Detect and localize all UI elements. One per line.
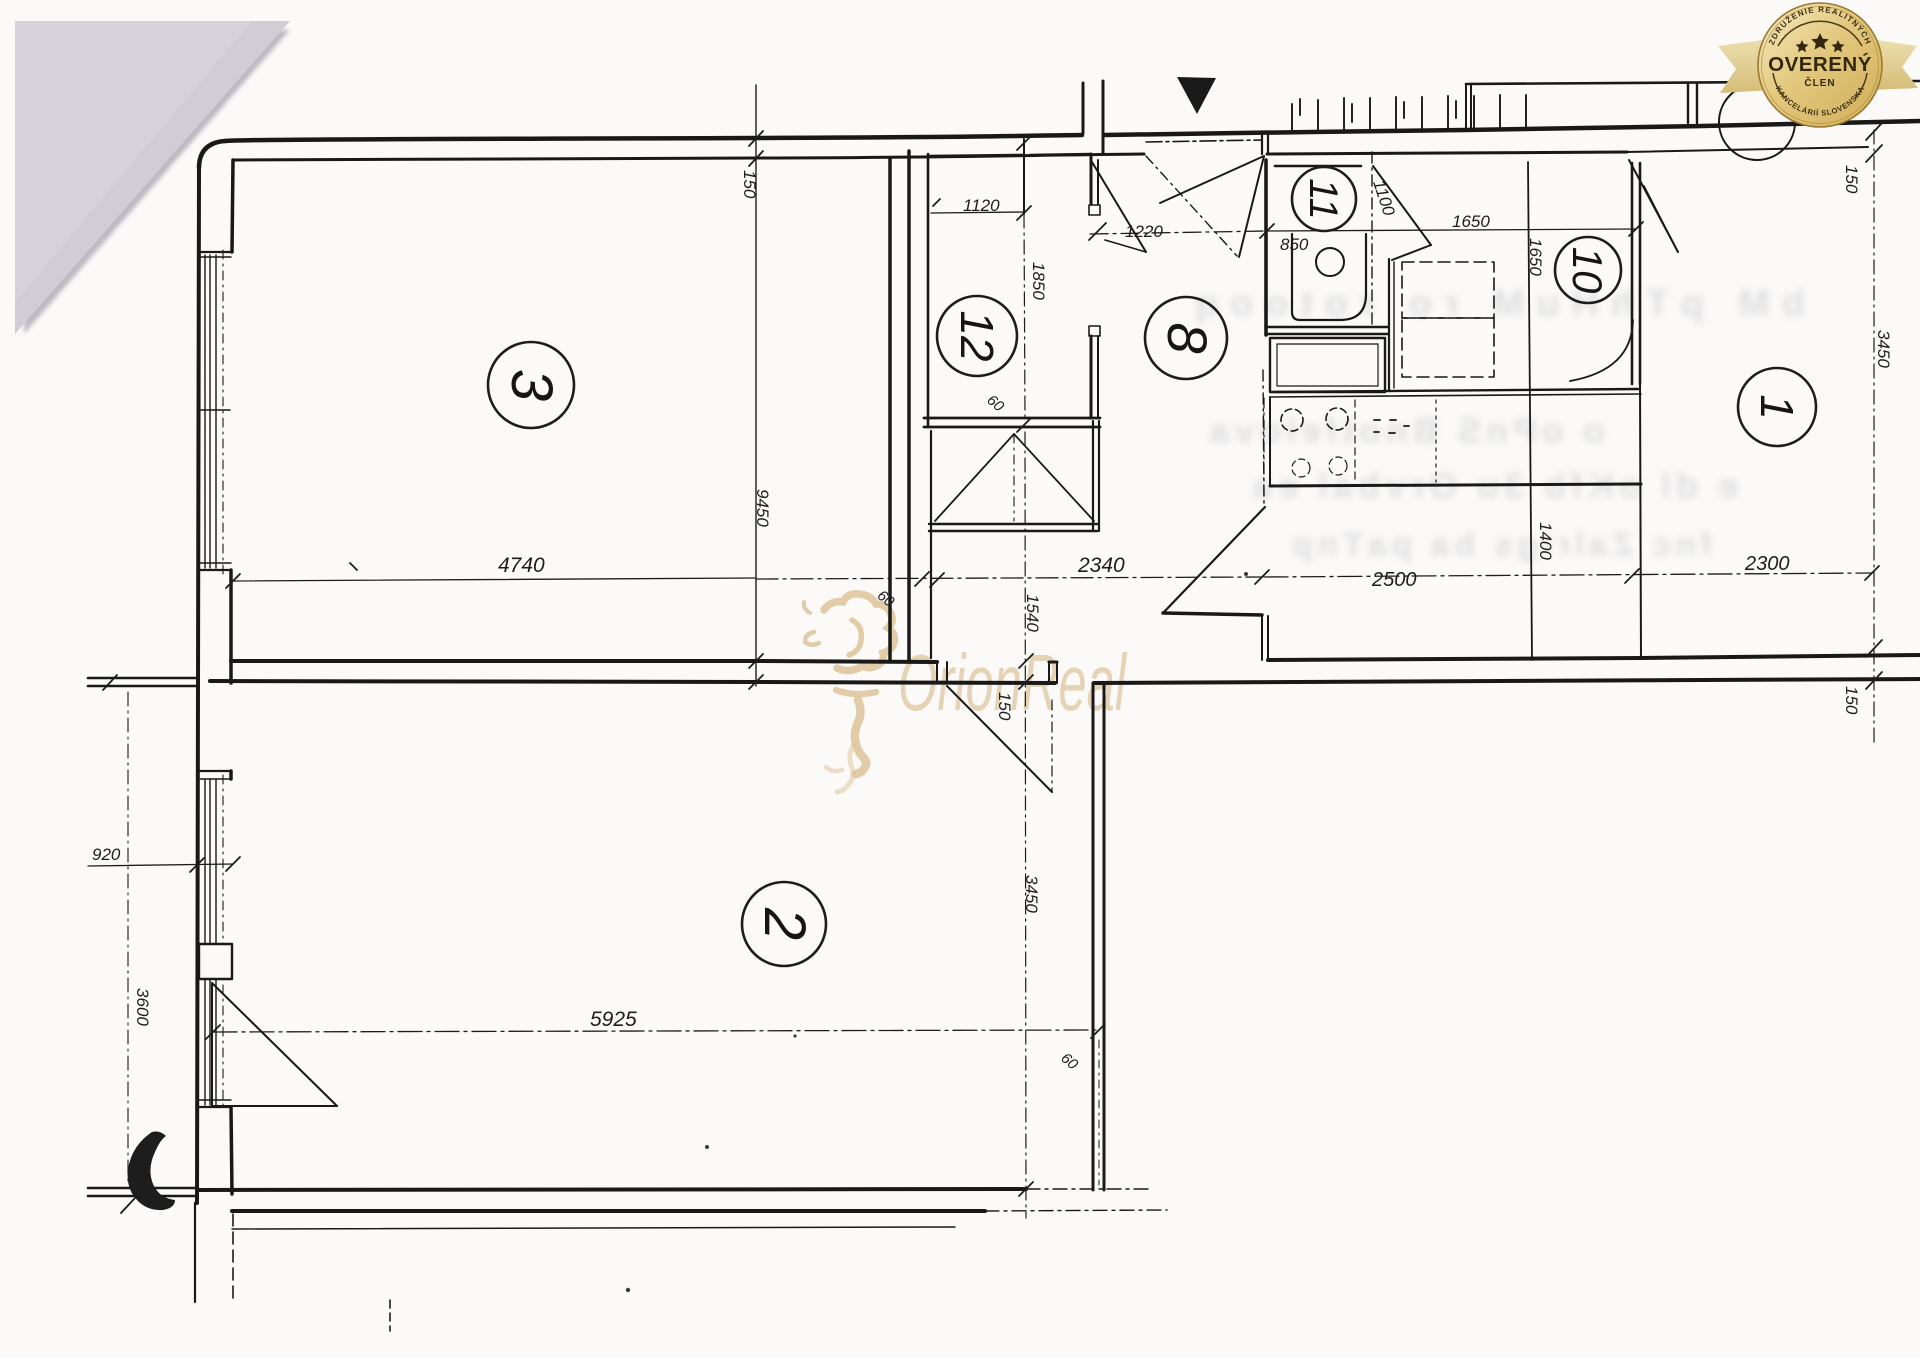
svg-text:850: 850 [1280,235,1309,254]
svg-text:2500: 2500 [1371,569,1417,591]
svg-text:9450: 9450 [753,489,772,527]
svg-text:3450: 3450 [1022,875,1041,913]
svg-text:5925: 5925 [590,1008,637,1031]
svg-text:3600: 3600 [133,988,152,1026]
svg-text:920: 920 [92,845,121,864]
svg-text:o oPnS Bnotfelova: o oPnS Bnotfelova [1209,410,1605,451]
svg-text:1220: 1220 [1125,222,1163,241]
svg-text:3450: 3450 [1874,330,1893,368]
svg-text:1120: 1120 [963,196,1000,215]
svg-text:4740: 4740 [498,554,545,577]
svg-text:150: 150 [995,692,1014,721]
svg-text:2340: 2340 [1077,554,1125,577]
svg-text:150: 150 [1842,165,1861,194]
svg-text:10: 10 [1564,247,1611,294]
svg-text:1850: 1850 [1029,262,1048,300]
svg-text:2300: 2300 [1744,553,1790,575]
svg-text:2: 2 [752,907,817,940]
svg-text:1650: 1650 [1526,238,1545,276]
svg-text:11: 11 [1301,178,1345,220]
svg-text:OVERENÝ: OVERENÝ [1768,52,1872,76]
svg-text:1650: 1650 [1452,212,1490,231]
svg-text:1540: 1540 [1023,594,1042,632]
svg-text:1: 1 [1751,394,1803,420]
svg-text:150: 150 [1842,686,1861,715]
svg-text:8: 8 [1156,322,1219,353]
svg-text:150: 150 [740,170,759,199]
svg-text:12: 12 [951,310,1003,361]
svg-text:ČLEN: ČLEN [1804,76,1835,89]
svg-text:1400: 1400 [1536,522,1555,560]
svg-text:3: 3 [499,369,564,401]
